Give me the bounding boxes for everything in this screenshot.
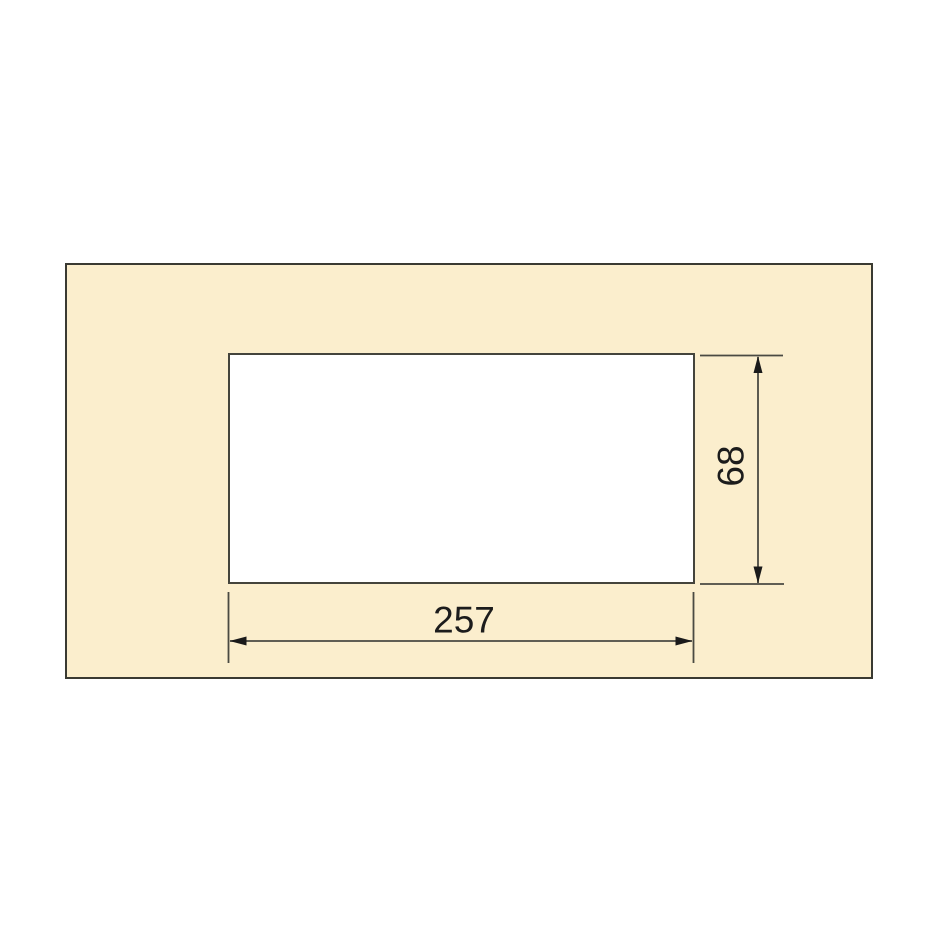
height-dimension-label: 68 [713,445,750,486]
arrowhead-up-icon [754,356,763,373]
arrowhead-right-icon [676,637,693,646]
arrowhead-left-icon [230,637,247,646]
arrowhead-down-icon [754,567,763,584]
dimension-layer [0,0,940,940]
drawing-canvas: 257 68 [0,0,940,940]
width-dimension-label: 257 [433,602,495,639]
